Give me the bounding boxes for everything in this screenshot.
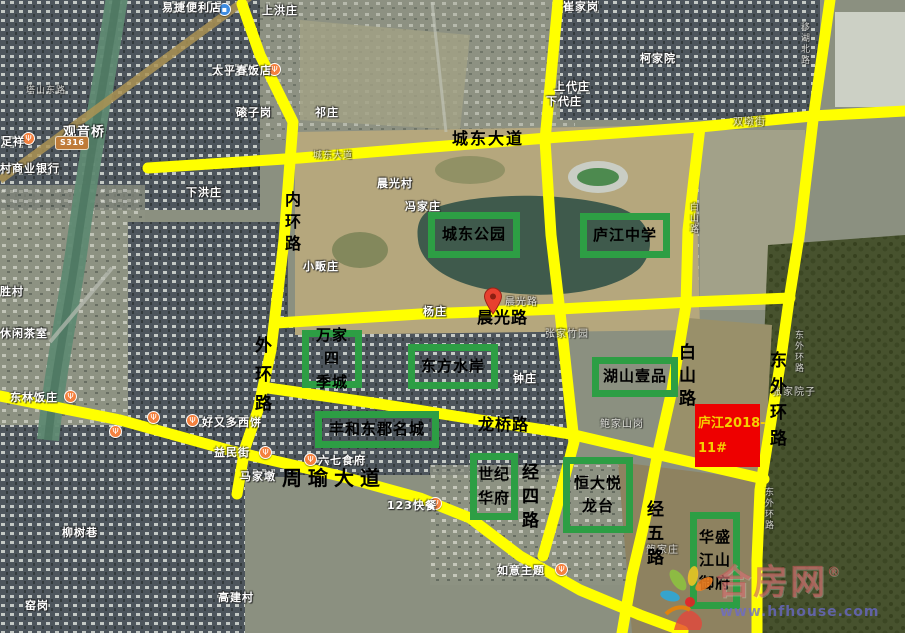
highlight-box-label: 华盛	[699, 526, 731, 549]
highlight-box-shiji-huafu: 世纪华府	[470, 453, 518, 520]
watermark-logo	[660, 566, 722, 633]
highlight-box-chengdong-park: 城东公园	[428, 212, 520, 258]
highlight-box-lujiang-middle-school: 庐江中学	[580, 213, 670, 258]
annotation-box-layer: 城东公园庐江中学万家四季城东方水岸湖山壹品丰和东郡名城世纪华府恒大悦龙台华盛江山…	[0, 0, 905, 633]
parcel-label-line1: 庐江2018-	[698, 411, 760, 436]
satellite-map[interactable]: 上洪庄崔家岗塔山东路观音桥磙子岗祁庄柯家院上代庄下代庄双墩街移湖北路城东大道下洪…	[0, 0, 905, 633]
registered-mark: ®	[827, 565, 842, 580]
route-shield-s316: S316	[55, 136, 89, 150]
highlight-box-label: 恒大悦	[574, 472, 622, 495]
highlight-box-label: 庐江中学	[593, 224, 657, 247]
highlight-box-label: 东方水岸	[421, 355, 485, 378]
watermark-url: www.hfhouse.com	[720, 604, 879, 620]
parcel-lujiang-2018-11: 庐江2018- 11#	[695, 404, 760, 467]
highlight-box-label: 华府	[478, 487, 510, 510]
highlight-box-dongfang-shuian: 东方水岸	[408, 344, 498, 389]
highlight-box-label: 世纪	[478, 463, 510, 486]
highlight-box-label: 城东公园	[442, 223, 506, 246]
highlight-box-label: 季城	[316, 371, 348, 394]
highlight-box-label: 万家四	[309, 324, 355, 371]
highlight-box-label: 龙台	[582, 495, 614, 518]
map-pin[interactable]	[483, 287, 503, 315]
highlight-box-fenghe-dongjun-mingcheng: 丰和东郡名城	[315, 411, 439, 448]
watermark-brand: 合房网®	[716, 566, 842, 601]
highlight-box-label: 丰和东郡名城	[329, 418, 425, 441]
highlight-box-label: 湖山壹品	[603, 365, 667, 388]
highlight-box-hushan-yipin: 湖山壹品	[592, 357, 678, 397]
watermark-brand-text: 合房网	[716, 563, 827, 603]
highlight-box-hengda-yuelongtai: 恒大悦龙台	[563, 457, 633, 533]
parcel-label-line2: 11#	[698, 436, 760, 461]
highlight-box-wanjia-sijicheng: 万家四季城	[302, 330, 362, 388]
